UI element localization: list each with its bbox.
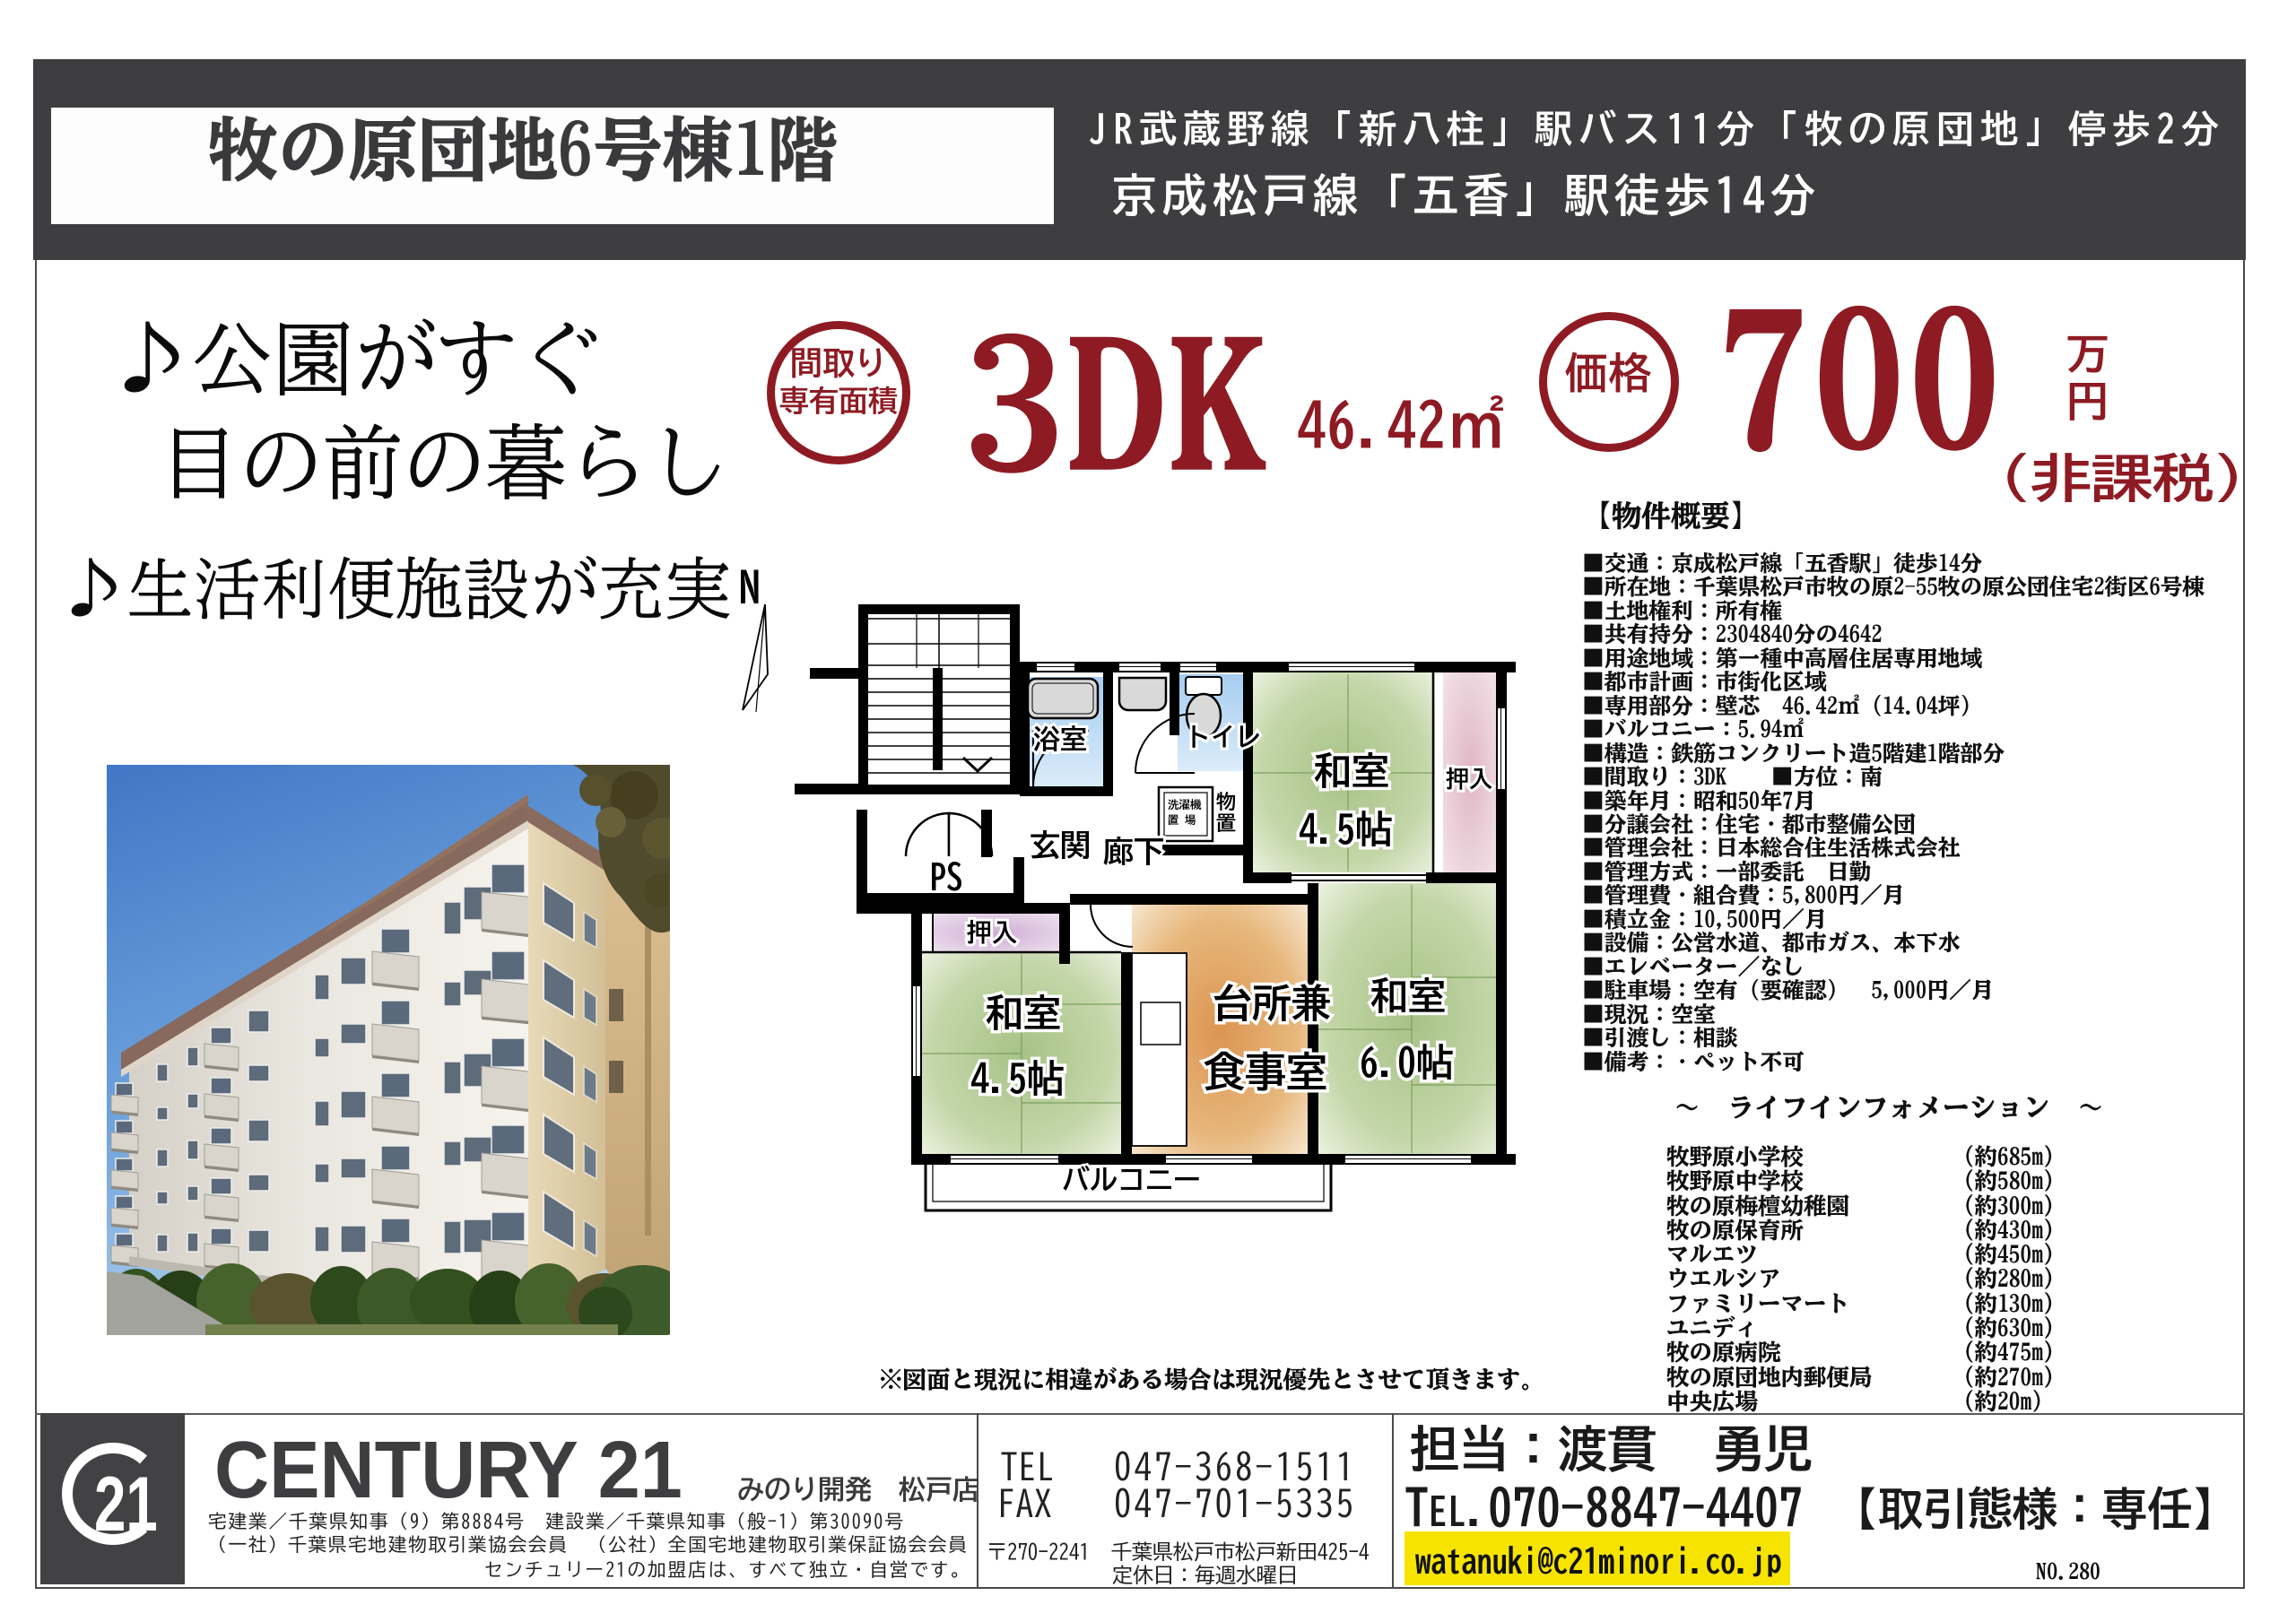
svg-text:和室: 和室: [1314, 751, 1389, 790]
svg-text:置 場: 置 場: [1168, 814, 1196, 826]
svg-text:4.5帖: 4.5帖: [1299, 811, 1393, 848]
svg-text:PS: PS: [929, 860, 963, 894]
svg-text:和室: 和室: [986, 993, 1061, 1032]
svg-text:N: N: [739, 567, 760, 608]
svg-text:廊下: 廊下: [1103, 836, 1164, 867]
svg-text:和室: 和室: [1370, 976, 1446, 1015]
svg-text:押入: 押入: [967, 920, 1017, 945]
svg-text:6.0帖: 6.0帖: [1360, 1044, 1454, 1081]
svg-text:台所兼: 台所兼: [1213, 984, 1331, 1023]
svg-text:食事室: 食事室: [1204, 1051, 1327, 1092]
svg-text:玄関: 玄関: [1030, 830, 1091, 861]
svg-text:4.5帖: 4.5帖: [970, 1060, 1065, 1097]
svg-text:押入: 押入: [1446, 767, 1492, 791]
svg-text:物: 物: [1215, 792, 1236, 811]
svg-text:洗濯機: 洗濯機: [1168, 799, 1202, 811]
svg-text:置: 置: [1216, 813, 1236, 833]
svg-text:トイレ: トイレ: [1186, 724, 1261, 750]
svg-text:浴室: 浴室: [1033, 725, 1087, 752]
svg-text:バルコニー: バルコニー: [1062, 1165, 1201, 1193]
svg-text:21: 21: [94, 1462, 158, 1548]
